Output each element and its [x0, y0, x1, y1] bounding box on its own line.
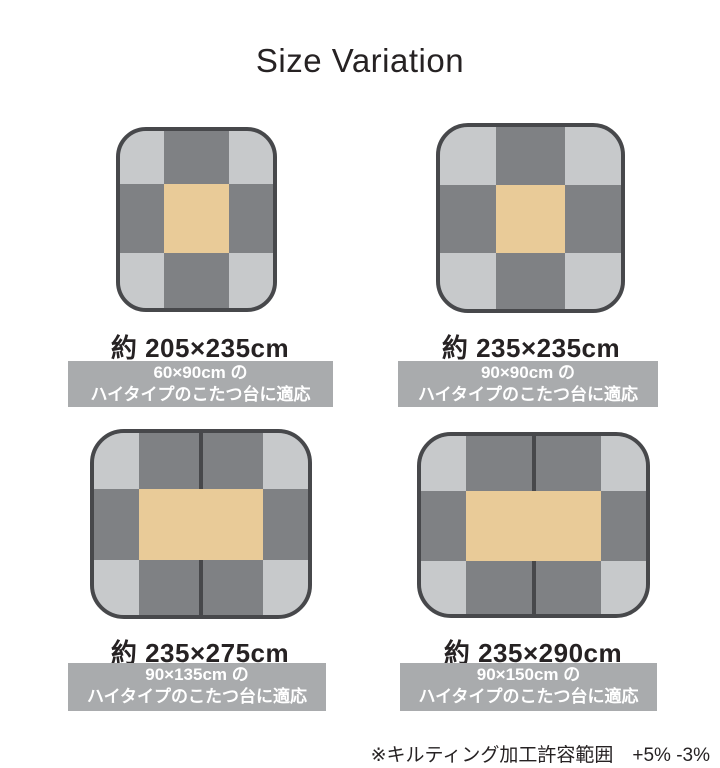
fit-banner: 90×90cm の ハイタイプのこたつ台に適応: [398, 361, 658, 407]
pattern-square-light: [565, 253, 621, 309]
center-seam-line: [199, 433, 203, 489]
pattern-square-light: [229, 253, 273, 308]
fit-banner-line2: ハイタイプのこたつ台に適応: [68, 686, 326, 708]
pattern-square-light: [440, 127, 496, 185]
pattern-square-light: [565, 127, 621, 185]
rug-diagram-235x290: [417, 432, 650, 618]
pattern-square-dark: [440, 185, 496, 252]
pattern-square-dark: [421, 491, 466, 560]
pattern-square-center: [139, 489, 263, 560]
pattern-square-light: [94, 560, 139, 615]
fit-banner: 60×90cm の ハイタイプのこたつ台に適応: [68, 361, 333, 407]
pattern-square-light: [601, 561, 646, 614]
fit-banner-line2: ハイタイプのこたつ台に適応: [68, 384, 333, 406]
fit-banner-line1: 90×90cm の: [398, 362, 658, 384]
page-title: Size Variation: [0, 42, 720, 80]
pattern-square-dark: [565, 185, 621, 252]
pattern-square-light: [120, 131, 164, 184]
fit-banner: 90×150cm の ハイタイプのこたつ台に適応: [400, 663, 657, 711]
pattern-square-dark: [94, 489, 139, 560]
pattern-square-dark: [496, 127, 565, 185]
size-label: 約 235×235cm: [396, 328, 666, 365]
pattern-square-dark: [164, 253, 228, 308]
size-variation-page: { "title": "Size Variation", "footnote":…: [0, 0, 720, 768]
pattern-square-light: [263, 560, 308, 615]
rug-diagram-235x235: [436, 123, 625, 313]
pattern-square-light: [440, 253, 496, 309]
size-label: 約 205×235cm: [65, 328, 335, 365]
pattern-square-light: [421, 436, 466, 491]
center-seam-line: [532, 561, 536, 614]
pattern-square-light: [120, 253, 164, 308]
rug-diagram-235x275: [90, 429, 312, 619]
pattern-square-center: [164, 184, 228, 253]
fit-banner-line2: ハイタイプのこたつ台に適応: [398, 384, 658, 406]
pattern-square-dark: [263, 489, 308, 560]
pattern-square-light: [421, 561, 466, 614]
pattern-square-light: [229, 131, 273, 184]
pattern-square-light: [263, 433, 308, 489]
center-seam-line: [532, 436, 536, 491]
pattern-square-light: [601, 436, 646, 491]
pattern-square-dark: [496, 253, 565, 309]
center-seam-line: [199, 560, 203, 615]
fit-banner-line2: ハイタイプのこたつ台に適応: [400, 686, 657, 708]
fit-banner: 90×135cm の ハイタイプのこたつ台に適応: [68, 663, 326, 711]
quilting-tolerance-footnote: ※キルティング加工許容範囲 +5% -3%: [371, 740, 710, 767]
pattern-square-dark: [601, 491, 646, 560]
pattern-square-light: [94, 433, 139, 489]
rug-pattern: [440, 127, 621, 309]
fit-banner-line1: 90×150cm の: [400, 664, 657, 686]
fit-banner-line1: 60×90cm の: [68, 362, 333, 384]
pattern-square-dark: [229, 184, 273, 253]
pattern-square-dark: [164, 131, 228, 184]
pattern-square-dark: [120, 184, 164, 253]
rug-diagram-205x235: [116, 127, 277, 312]
pattern-square-center: [496, 185, 565, 252]
fit-banner-line1: 90×135cm の: [68, 664, 326, 686]
rug-pattern: [120, 131, 273, 308]
pattern-square-center: [466, 491, 601, 560]
